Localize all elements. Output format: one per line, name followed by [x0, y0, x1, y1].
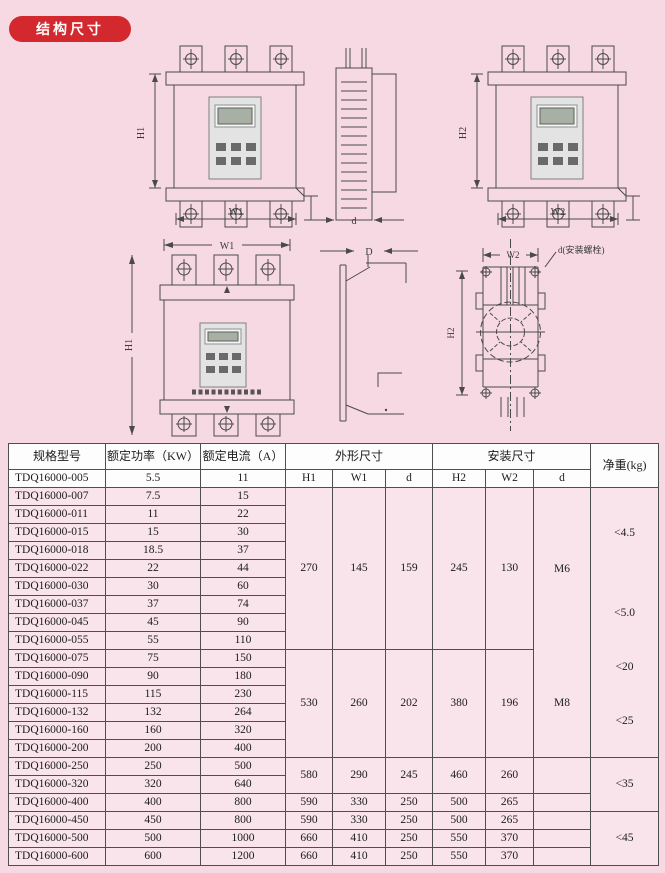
cell-current: 22 [201, 506, 286, 524]
terminal-icon [180, 201, 202, 227]
subheader-d2: d [534, 470, 591, 488]
cell-weight: <45 [591, 812, 659, 866]
cell-power: 75 [106, 650, 201, 668]
cell-power: 115 [106, 686, 201, 704]
cell-w2: 196 [486, 650, 534, 758]
drawing-rear-mounting-view: W2 H2 d(安装螺栓) [446, 235, 661, 440]
cell-w2: 130 [486, 488, 534, 650]
dim-label-d: D [365, 247, 372, 258]
cell-h2: 380 [433, 650, 486, 758]
terminal-icon [270, 201, 292, 227]
cell-d-outline: 250 [386, 812, 433, 830]
terminal-icon [502, 46, 524, 72]
bottom-flange [488, 188, 626, 201]
cell-model: TDQ16000-200 [9, 740, 106, 758]
cell-weight: <20 [591, 650, 659, 686]
drawing-side-view-top: d [308, 44, 408, 226]
cell-model: TDQ16000-075 [9, 650, 106, 668]
cell-power: 400 [106, 794, 201, 812]
cell-power: 7.5 [106, 488, 201, 506]
dim-label-h2: H2 [458, 127, 469, 139]
cell-current: 60 [201, 578, 286, 596]
cell-power: 250 [106, 758, 201, 776]
cell-model: TDQ16000-005 [9, 470, 106, 488]
subheader-w1: W1 [333, 470, 386, 488]
cell-bolt-empty [534, 758, 591, 794]
cell-power: 22 [106, 560, 201, 578]
cell-model: TDQ16000-037 [9, 596, 106, 614]
cell-h2: 245 [433, 488, 486, 650]
dim-label-d: d [352, 216, 357, 226]
top-flange [166, 72, 304, 85]
cell-model: TDQ16000-250 [9, 758, 106, 776]
cell-weight: <5.0 [591, 578, 659, 650]
cell-model: TDQ16000-090 [9, 668, 106, 686]
drawing-front-view-bottom: W1 H1 [120, 233, 315, 437]
cell-model: TDQ16000-015 [9, 524, 106, 542]
cell-power: 132 [106, 704, 201, 722]
cell-w1: 145 [333, 488, 386, 650]
cell-h2: 550 [433, 848, 486, 866]
cell-w1: 260 [333, 650, 386, 758]
cell-model: TDQ16000-400 [9, 794, 106, 812]
cell-model: TDQ16000-030 [9, 578, 106, 596]
depth-bracket [618, 188, 640, 220]
cell-bolt-empty [534, 794, 591, 812]
cell-current: 37 [201, 542, 286, 560]
cell-model: TDQ16000-018 [9, 542, 106, 560]
cell-h2: 500 [433, 794, 486, 812]
cell-h1: 580 [286, 758, 333, 794]
terminal-icon [592, 46, 614, 72]
cell-model: TDQ16000-600 [9, 848, 106, 866]
mounting-plate-edge [340, 265, 346, 421]
cell-h2: 550 [433, 830, 486, 848]
cell-power: 320 [106, 776, 201, 794]
col-header-mount-dims: 安装尺寸 [433, 444, 591, 470]
keypad [531, 97, 583, 179]
cell-h1: 530 [286, 650, 333, 758]
col-header-outline-dims: 外形尺寸 [286, 444, 433, 470]
col-header-model: 规格型号 [9, 444, 106, 470]
cell-w2: 370 [486, 830, 534, 848]
cell-current: 230 [201, 686, 286, 704]
cell-model: TDQ16000-115 [9, 686, 106, 704]
cell-weight: <4.5 [591, 488, 659, 578]
bottom-flange [166, 188, 304, 201]
cell-power: 160 [106, 722, 201, 740]
terminal-icon [172, 414, 196, 436]
keypad [209, 97, 261, 179]
cell-weight: <25 [591, 686, 659, 758]
cell-current: 1200 [201, 848, 286, 866]
bottom-terminal-lines [501, 397, 524, 417]
cell-power: 30 [106, 578, 201, 596]
terminal-icon [214, 255, 238, 285]
terminal-icon [547, 46, 569, 72]
cell-model: TDQ16000-320 [9, 776, 106, 794]
terminal-icon [256, 255, 280, 285]
bottom-bracket [378, 373, 402, 387]
terminal-studs [346, 48, 366, 68]
spec-table: 规格型号 额定功率（KW） 额定电流（A） 外形尺寸 安装尺寸 净重(kg) T… [8, 443, 659, 866]
cell-current: 800 [201, 794, 286, 812]
cell-w2: 265 [486, 812, 534, 830]
cell-power: 18.5 [106, 542, 201, 560]
terminal-icon [172, 255, 196, 285]
cell-h1: 590 [286, 812, 333, 830]
cell-current: 110 [201, 632, 286, 650]
terminal-icon [214, 414, 238, 436]
cell-current: 640 [201, 776, 286, 794]
cell-w1: 410 [333, 830, 386, 848]
cell-current: 500 [201, 758, 286, 776]
keypad [200, 323, 246, 387]
cell-w2: 265 [486, 794, 534, 812]
cell-current: 30 [201, 524, 286, 542]
cell-power: 450 [106, 812, 201, 830]
cell-current: 15 [201, 488, 286, 506]
cell-current: 90 [201, 614, 286, 632]
col-header-power: 额定功率（KW） [106, 444, 201, 470]
drawing-side-profile-bottom: D [316, 237, 431, 427]
dim-label-w1: W1 [220, 241, 234, 252]
cell-power: 55 [106, 632, 201, 650]
cell-w1: 330 [333, 794, 386, 812]
cell-power: 200 [106, 740, 201, 758]
cell-model: TDQ16000-160 [9, 722, 106, 740]
heatsink-fins [341, 82, 367, 208]
cell-d-outline: 250 [386, 794, 433, 812]
cell-h2: 500 [433, 812, 486, 830]
cell-weight: <35 [591, 758, 659, 812]
col-header-weight: 净重(kg) [591, 444, 659, 488]
subheader-h1: H1 [286, 470, 333, 488]
cell-h1: 590 [286, 794, 333, 812]
cell-current: 264 [201, 704, 286, 722]
cell-w1: 290 [333, 758, 386, 794]
cell-h1: 660 [286, 848, 333, 866]
cell-bolt-empty [534, 812, 591, 830]
cell-h2: 460 [433, 758, 486, 794]
cell-power: 90 [106, 668, 201, 686]
cell-bolt-empty [534, 830, 591, 848]
cell-power: 11 [106, 506, 201, 524]
col-header-current: 额定电流（A） [201, 444, 286, 470]
cell-power: 500 [106, 830, 201, 848]
cell-d-outline: 250 [386, 830, 433, 848]
cell-w1: 330 [333, 812, 386, 830]
cell-current: 320 [201, 722, 286, 740]
subheader-w2: W2 [486, 470, 534, 488]
dim-label-h1: H1 [124, 339, 135, 351]
cell-model: TDQ16000-450 [9, 812, 106, 830]
cell-current: 74 [201, 596, 286, 614]
cell-bolt: M8 [534, 650, 591, 758]
cell-model: TDQ16000-011 [9, 506, 106, 524]
terminal-icon [256, 414, 280, 436]
cell-model: TDQ16000-045 [9, 614, 106, 632]
cell-current: 11 [201, 470, 286, 488]
terminal-icon [225, 46, 247, 72]
cell-power: 45 [106, 614, 201, 632]
dim-label-h1: H1 [136, 127, 147, 139]
cell-power: 5.5 [106, 470, 201, 488]
cell-current: 800 [201, 812, 286, 830]
mounting-bolt-note: d(安装螺栓) [558, 244, 605, 255]
dim-label-h2: H2 [446, 328, 456, 339]
terminal-icon [270, 46, 292, 72]
terminal-icon [592, 201, 614, 227]
dim-label-w2: W2 [507, 250, 520, 260]
cell-current: 150 [201, 650, 286, 668]
top-flange [488, 72, 626, 85]
cell-current: 44 [201, 560, 286, 578]
base-line [346, 405, 404, 414]
h2-dimension-line [456, 271, 468, 395]
dim-label-w1: W1 [229, 207, 243, 218]
cell-model: TDQ16000-500 [9, 830, 106, 848]
drawing-front-view-top-left: H1 W1 [128, 40, 328, 230]
terminal-icon [502, 201, 524, 227]
top-bracket [346, 255, 406, 283]
cell-d-outline: 159 [386, 488, 433, 650]
subheader-h2: H2 [433, 470, 486, 488]
h2-dimension-line [471, 74, 483, 188]
cell-d-outline: 250 [386, 848, 433, 866]
cell-d-outline: 202 [386, 650, 433, 758]
cell-w2: 260 [486, 758, 534, 794]
terminal-block-lines [501, 267, 525, 305]
terminal-icon [180, 46, 202, 72]
cell-power: 15 [106, 524, 201, 542]
section-title-badge: 结构尺寸 [9, 16, 131, 42]
cell-model: TDQ16000-055 [9, 632, 106, 650]
cell-model: TDQ16000-022 [9, 560, 106, 578]
cell-current: 180 [201, 668, 286, 686]
cell-w1: 410 [333, 848, 386, 866]
cell-bolt-empty [534, 848, 591, 866]
subheader-d1: d [386, 470, 433, 488]
cell-model: TDQ16000-132 [9, 704, 106, 722]
cell-h1: 270 [286, 488, 333, 650]
note-leader-line [545, 252, 556, 267]
cell-power: 37 [106, 596, 201, 614]
cell-bolt: M6 [534, 488, 591, 650]
cell-current: 1000 [201, 830, 286, 848]
cell-w2: 370 [486, 848, 534, 866]
mounting-plate [372, 74, 396, 192]
drawing-front-view-top-right: H2 W2 [450, 40, 650, 230]
cell-current: 400 [201, 740, 286, 758]
h1-dimension-line [149, 74, 161, 188]
catalog-page: 结构尺寸 [0, 0, 665, 873]
cell-d-outline: 245 [386, 758, 433, 794]
cell-power: 600 [106, 848, 201, 866]
cell-h1: 660 [286, 830, 333, 848]
dim-label-w2: W2 [551, 207, 565, 218]
cell-model: TDQ16000-007 [9, 488, 106, 506]
